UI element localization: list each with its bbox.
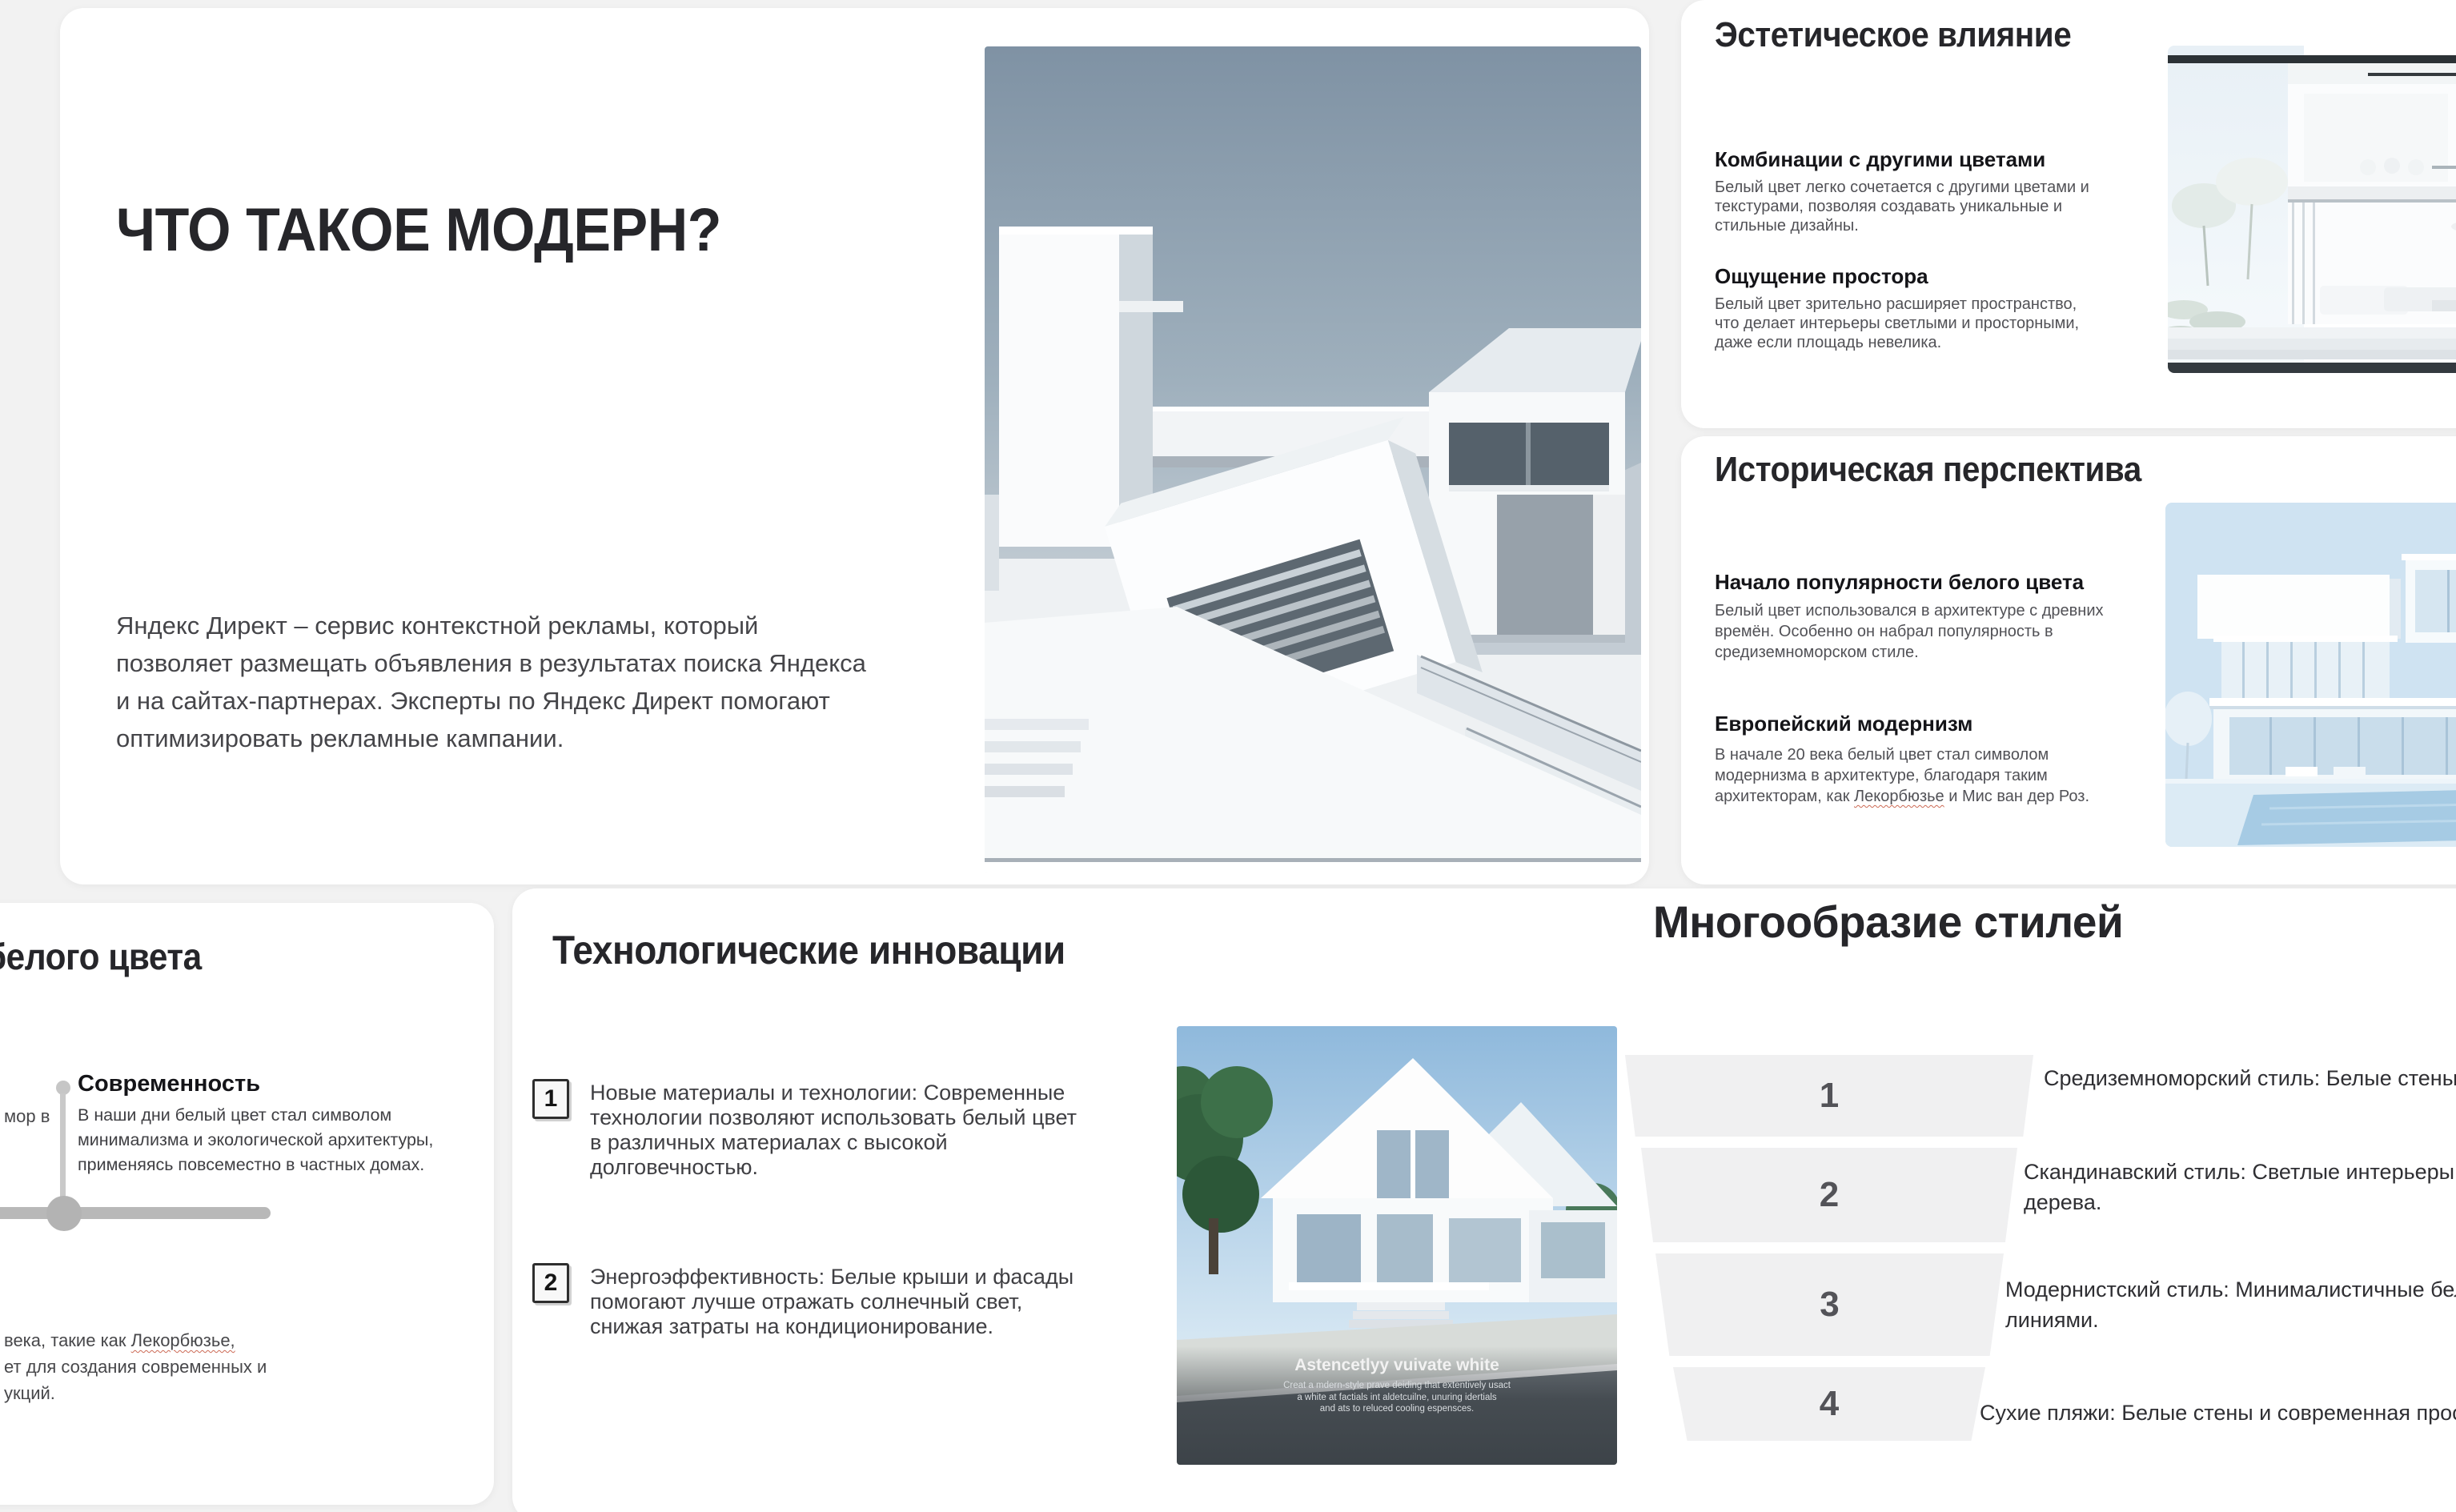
- section-text-after: и Мис ван дер Роз.: [1944, 788, 2089, 805]
- section-text: Белый цвет зрительно расширяет пространс…: [1715, 295, 2099, 352]
- interior-image[interactable]: [2168, 46, 2456, 373]
- section-text: В начале 20 века белый цвет стал символо…: [1715, 744, 2099, 807]
- style-label-1: Средиземноморский стиль: Белые стены и: [2044, 1063, 2456, 1093]
- caption-line: and ats to reluced cooling espensces.: [1177, 1403, 1617, 1415]
- style-label-line: Модернистский стиль: Минималистичные бел…: [2005, 1274, 2456, 1305]
- architecture-render-image[interactable]: [985, 46, 1641, 872]
- funnel-number: 2: [1820, 1175, 1839, 1215]
- fragment-line-1: века, такие как Лекорбюзье,: [4, 1327, 267, 1354]
- style-label-2: Скандинавский стиль: Светлые интерьеры и…: [2024, 1157, 2456, 1217]
- funnel-number: 4: [1820, 1384, 1839, 1424]
- slide-title: Историческая перспектива: [1715, 452, 2141, 487]
- timeline-slider-handle[interactable]: [46, 1196, 82, 1231]
- spellcheck-word[interactable]: Лекорбюзье: [1854, 788, 1944, 805]
- timeline-item-heading: Современность: [78, 1071, 260, 1097]
- funnel-step-4: 4: [1673, 1367, 1985, 1441]
- cut-text-fragment-bottom: века, такие как Лекорбюзье, ет для созда…: [4, 1327, 267, 1406]
- villa-graphic: [2165, 503, 2456, 847]
- section-heading: Ощущение простора: [1715, 265, 1928, 289]
- fragment-line-2: ет для создания современных и: [4, 1354, 267, 1380]
- timeline-slider-track[interactable]: [0, 1207, 271, 1219]
- slide-what-is-modern[interactable]: ЧТО ТАКОЕ МОДЕРН? Яндекс Директ – сервис…: [60, 8, 1649, 884]
- slide-white-color-timeline[interactable]: белого цвета мор в Современность В наши …: [0, 903, 494, 1505]
- slide-aesthetic-influence[interactable]: Эстетическое влияние Комбинации с другим…: [1681, 0, 2456, 428]
- section-text: Белый цвет использовался в архитектуре с…: [1715, 600, 2115, 663]
- section-text: Белый цвет легко сочетается с другими цв…: [1715, 178, 2099, 235]
- style-label-line: Сухие пляжи: Белые стены и современная п…: [1980, 1398, 2456, 1428]
- style-label-line: Скандинавский стиль: Светлые интерьеры и: [2024, 1157, 2456, 1187]
- timeline-item-text: В наши дни белый цвет стал символом мини…: [78, 1103, 490, 1177]
- style-label-3: Модернистский стиль: Минималистичные бел…: [2005, 1274, 2456, 1335]
- architecture-render-graphic: [985, 46, 1641, 872]
- spellcheck-word[interactable]: Лекорбюзье,: [131, 1330, 235, 1350]
- section-heading: Начало популярности белого цвета: [1715, 571, 2084, 595]
- caption-title: Astencetlyy vuivate white: [1177, 1356, 1617, 1375]
- caption-line: Creat a mdern-style prave deiding that e…: [1177, 1380, 1617, 1392]
- fragment-text: века, такие как: [4, 1330, 131, 1350]
- slide-title: ЧТО ТАКОЕ МОДЕРН?: [116, 200, 721, 261]
- presentation-canvas: ЧТО ТАКОЕ МОДЕРН? Яндекс Директ – сервис…: [0, 0, 2456, 1512]
- funnel-step-2: 2: [1641, 1148, 2017, 1242]
- caption-line: a white at factials int aldetcuilne, unu…: [1177, 1392, 1617, 1404]
- image-caption: Astencetlyy vuivate white Creat a mdern-…: [1177, 1356, 1617, 1415]
- styles-title: Многообразие стилей: [1653, 900, 2123, 944]
- badge-number: 1: [544, 1085, 558, 1113]
- style-label-line: дерева.: [2024, 1187, 2456, 1217]
- style-label-line: линиями.: [2005, 1305, 2456, 1335]
- fragment-line-3: укций.: [4, 1380, 267, 1406]
- style-label-line: Средиземноморский стиль: Белые стены и: [2044, 1063, 2456, 1093]
- slide-body-text: Яндекс Директ – сервис контекстной рекла…: [116, 607, 877, 757]
- tech-item-text-2: Энергоэффективность: Белые крыши и фасад…: [590, 1265, 1086, 1339]
- numbered-badge-2: 2: [532, 1263, 569, 1303]
- funnel-number: 3: [1820, 1285, 1839, 1325]
- slide-tech-and-styles[interactable]: Технологические инновации 1 Новые матери…: [512, 888, 2456, 1512]
- slide-title-fragment: белого цвета: [0, 938, 202, 975]
- section-heading: Европейский модернизм: [1715, 712, 1972, 736]
- villa-image[interactable]: [2165, 503, 2456, 847]
- cut-text-fragment-left: мор в: [4, 1106, 50, 1127]
- funnel-number: 1: [1820, 1076, 1839, 1116]
- numbered-badge-1: 1: [532, 1079, 569, 1119]
- slide-historical-perspective[interactable]: Историческая перспектива Начало популярн…: [1681, 436, 2456, 884]
- badge-number: 2: [544, 1269, 558, 1297]
- interior-graphic: [2168, 46, 2456, 373]
- section-heading: Комбинации с другими цветами: [1715, 148, 2045, 172]
- funnel-step-1: 1: [1625, 1055, 2033, 1137]
- style-label-4: Сухие пляжи: Белые стены и современная п…: [1980, 1398, 2456, 1428]
- tech-item-text-1: Новые материалы и технологии: Современны…: [590, 1081, 1086, 1180]
- tech-title: Технологические инновации: [552, 930, 1065, 970]
- timeline-vertical-line: [60, 1093, 66, 1207]
- slide-title: Эстетическое влияние: [1715, 18, 2071, 53]
- funnel-step-3: 3: [1655, 1253, 2004, 1356]
- house-image[interactable]: Astencetlyy vuivate white Creat a mdern-…: [1177, 1026, 1617, 1465]
